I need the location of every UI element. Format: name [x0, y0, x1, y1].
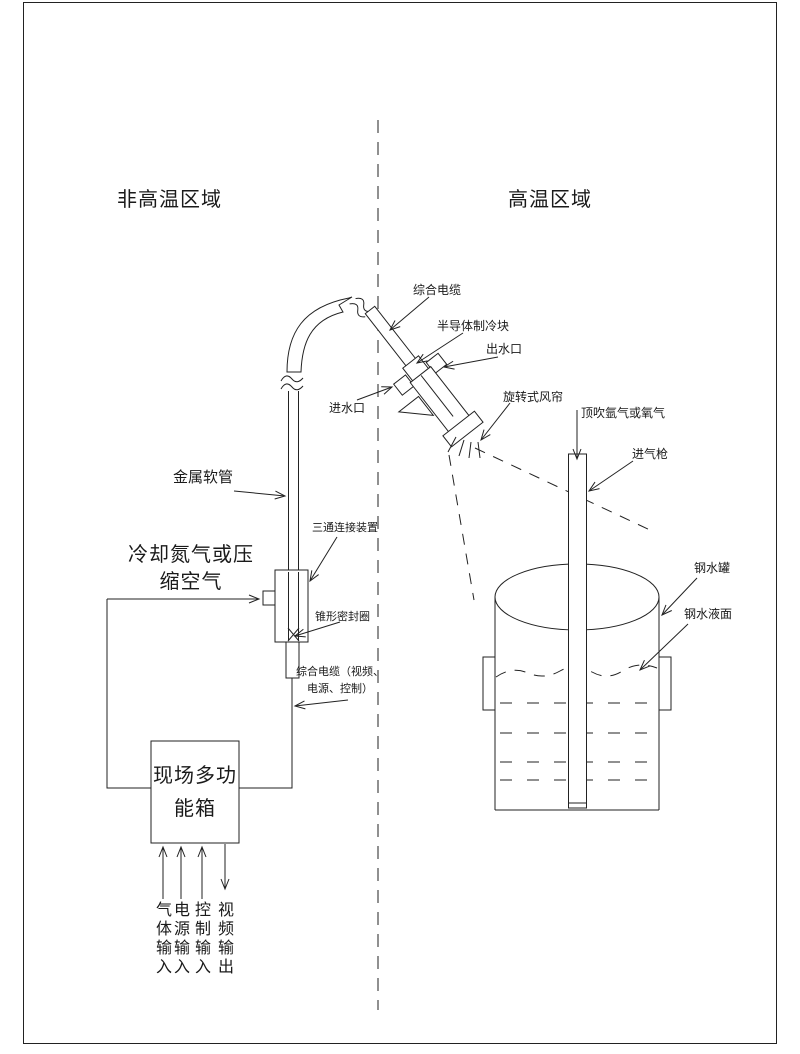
label-control-input: 控 制 输 入	[193, 901, 213, 977]
gas-lance-tube	[569, 454, 587, 808]
leader-lines	[234, 297, 697, 706]
label-metal-hose: 金属软管	[173, 469, 233, 488]
label-integrated-cable-detail: 综合电缆（视频、 电源、控制）	[294, 664, 386, 698]
io-arrows	[163, 844, 225, 899]
label-steel-level: 钢水液面	[684, 607, 732, 622]
label-gas-lance: 进气枪	[632, 447, 668, 462]
leader-gas-lance	[589, 461, 633, 491]
leader-cable-detail	[295, 700, 348, 706]
label-integrated-cable: 综合电缆	[413, 283, 461, 298]
diagram-canvas	[0, 0, 800, 1054]
pipe-break-mark	[281, 376, 303, 382]
leader-integrated-cable	[390, 297, 429, 330]
leader-steel-level	[640, 624, 688, 670]
label-water-outlet: 出水口	[486, 342, 522, 357]
label-water-inlet: 进水口	[329, 401, 365, 416]
cable-run	[239, 678, 292, 788]
label-conical-seal-ring: 锥形密封圈	[315, 611, 370, 625]
leader-water-inlet	[357, 387, 392, 400]
label-rotary-air-curtain: 旋转式风帘	[503, 390, 563, 405]
sight-lines	[449, 448, 650, 600]
leader-tee-connector	[310, 537, 337, 581]
leader-metal-hose	[234, 491, 285, 496]
label-cooling-gas: 冷却氮气或压 缩空气	[123, 542, 259, 596]
zone-title-non-high-temp: 非高温区域	[117, 188, 222, 213]
label-video-output: 视 频 输 出	[216, 901, 236, 977]
cooling-gas-run	[107, 599, 151, 788]
tank-trunnion-right	[659, 657, 671, 710]
label-gas-input: 气 体 输 入	[154, 901, 174, 977]
pipe-break-mark	[281, 384, 303, 390]
zone-title-high-temp: 高温区域	[508, 188, 592, 213]
label-ladle: 钢水罐	[694, 561, 730, 576]
label-power-input: 电 源 输 入	[172, 901, 192, 977]
leader-air-curtain	[481, 403, 510, 440]
diagram-page: 非高温区域 高温区域 综合电缆 半导体制冷块 出水口 进水口 旋转式风帘 顶吹氩…	[0, 0, 800, 1054]
label-top-blown-gas: 顶吹氩气或氧气	[581, 406, 665, 421]
gas-inlet-stub	[263, 591, 275, 605]
label-semiconductor-cooling-block: 半导体制冷块	[437, 319, 509, 334]
tank-trunnion-left	[483, 657, 495, 710]
label-field-multifunction-box: 现场多功 能箱	[151, 760, 239, 826]
tee-connector-block	[263, 570, 308, 678]
camera-cable-barrel	[365, 306, 416, 367]
leader-water-outlet	[444, 357, 498, 367]
label-tee-connector: 三通连接装置	[312, 522, 378, 536]
page-frame	[24, 3, 777, 1044]
